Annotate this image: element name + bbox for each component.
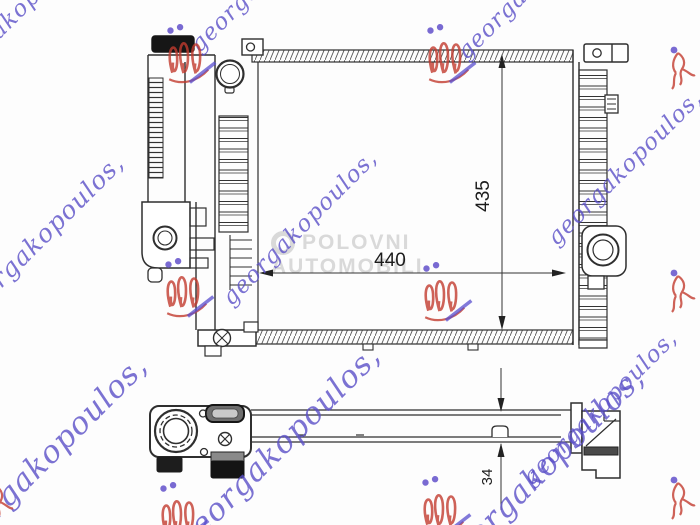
bottom-stub-left — [157, 457, 182, 472]
bottom-stub-right — [211, 461, 244, 478]
profile-bar — [251, 410, 573, 442]
outlet-port — [588, 235, 619, 266]
dimension-height: 435 — [473, 54, 506, 330]
right-tank — [573, 44, 628, 348]
left-tank-ladder — [219, 116, 248, 232]
hose-port — [154, 227, 177, 250]
left-tank — [142, 36, 263, 356]
front-view: 435 440 — [142, 36, 628, 356]
dimension-thickness: 34 — [479, 368, 505, 510]
bottom-view: 34 — [150, 368, 620, 510]
radiator-diagram-svg: 435 440 — [0, 0, 700, 525]
right-tank-ladder — [579, 70, 607, 340]
core-bottom-band — [252, 330, 573, 350]
top-right-bracket — [584, 44, 628, 62]
filler-cap — [152, 36, 194, 52]
dimension-thickness-label: 34 — [479, 469, 496, 486]
drain-plug — [148, 268, 162, 282]
dimension-width-label: 440 — [374, 250, 406, 271]
lower-rungs — [230, 235, 252, 290]
left-tank-fins — [149, 78, 163, 178]
dimension-width: 440 — [259, 250, 566, 277]
dimension-height-label: 435 — [473, 180, 494, 212]
core-top-band — [252, 50, 573, 62]
top-left-bracket — [242, 39, 263, 55]
bottom-port — [155, 410, 197, 452]
profile-clip — [492, 426, 508, 437]
radiator-technical-drawing: POLOVNI AUTOMOBILI — [0, 0, 700, 525]
bottom-view-right-bracket — [571, 403, 620, 478]
